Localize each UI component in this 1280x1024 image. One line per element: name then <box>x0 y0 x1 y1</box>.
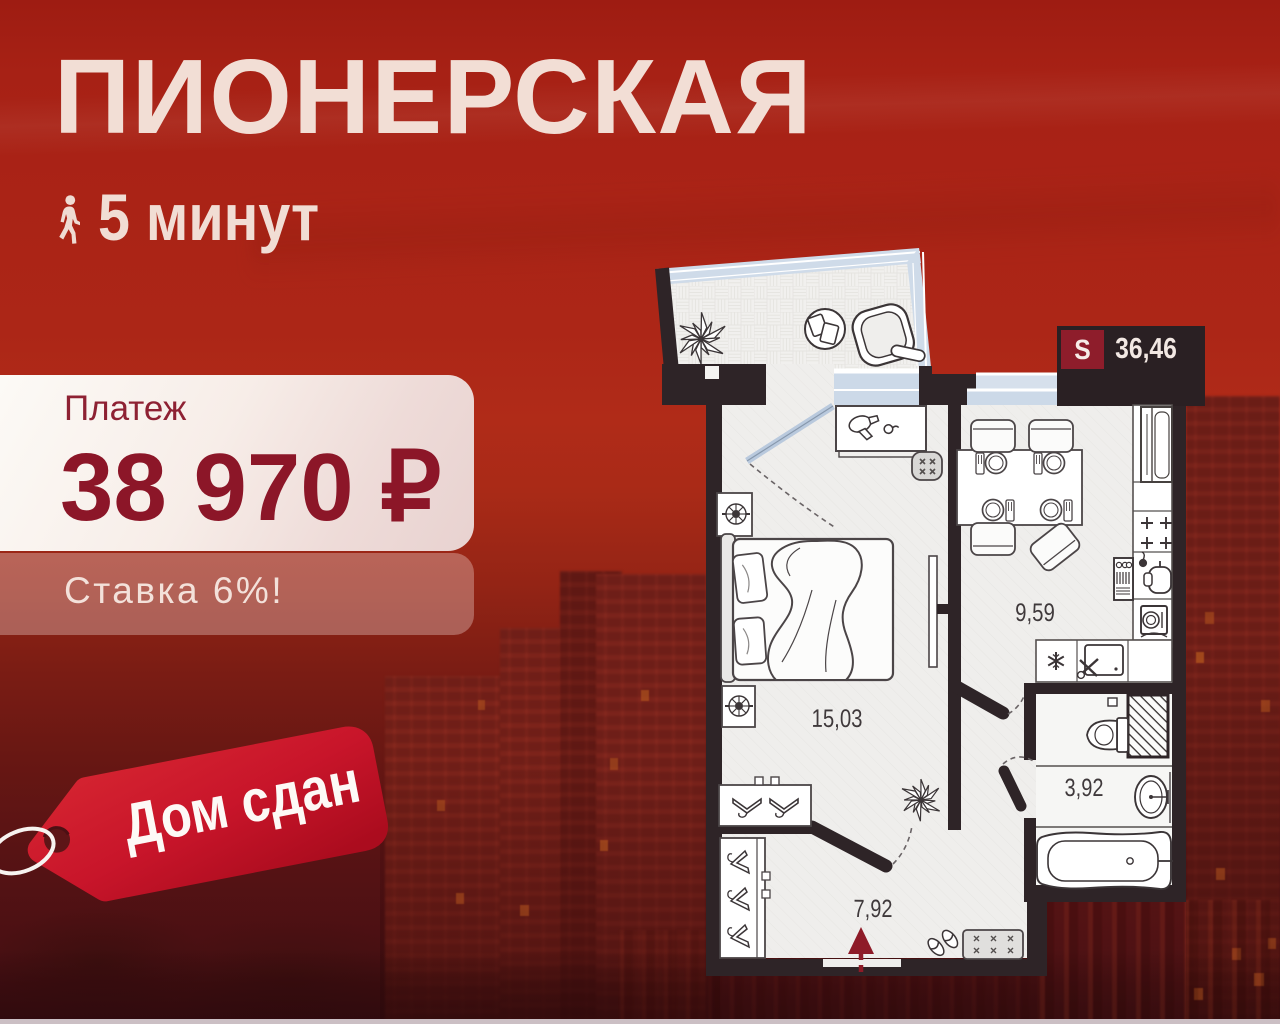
svg-text:36,46: 36,46 <box>1115 332 1177 364</box>
svg-text:7,92: 7,92 <box>854 895 893 923</box>
svg-text:15,03: 15,03 <box>811 704 862 733</box>
svg-text:S: S <box>1074 334 1090 366</box>
svg-text:3,92: 3,92 <box>1065 774 1104 802</box>
svg-text:9,59: 9,59 <box>1015 598 1055 627</box>
